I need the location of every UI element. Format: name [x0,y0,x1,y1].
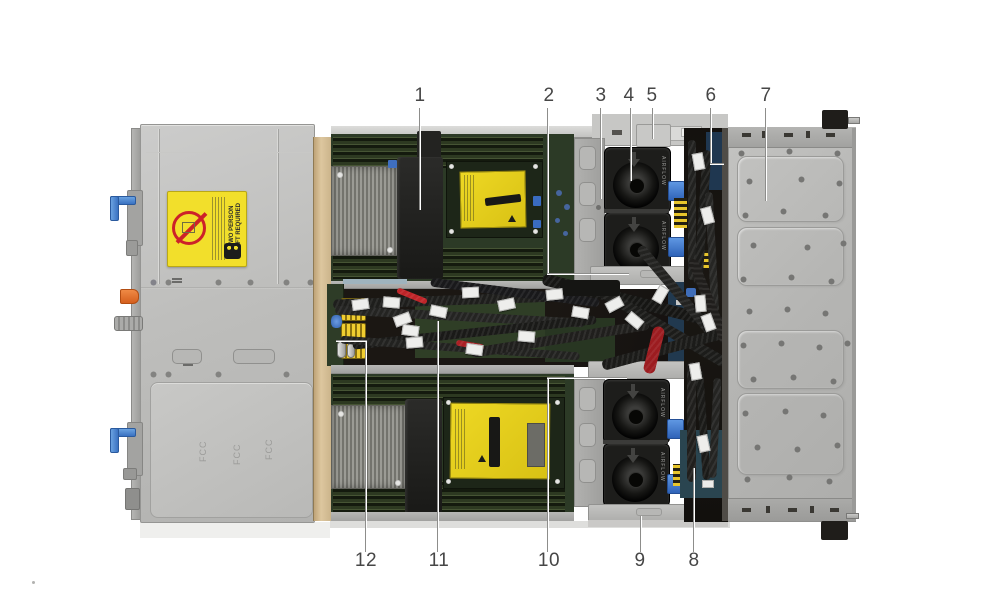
bay-bottom-rail [331,365,574,374]
top-heatsink-screw-1 [337,172,343,178]
chassis-corner-top-right [822,110,848,129]
bottom-socket-screw-br [555,479,560,484]
callout-label-3: 3 [595,85,606,107]
figure-canvas: TWO PERSON LIFT REQUIRED FCC FCC FCC [0,0,999,595]
bottom-heatsink-screw-2 [395,480,401,486]
cage-bottom-wall-tab-2 [579,423,596,447]
stamped-tab-b [233,349,275,364]
hook-bottom-2 [125,488,140,510]
callout-line-9 [640,516,642,552]
fan-2-airflow-text: AIRFLOW [660,221,666,267]
cage-top-wall-tab-1 [579,146,596,170]
fan-2-arrow-head [628,224,640,232]
chassis-corner-bottom-right [821,521,848,540]
callout-line-6 [710,108,712,165]
top-cap-4 [563,231,568,236]
bay-connector-block [560,280,620,296]
chassis-shadow [140,522,330,538]
callout-line-11 [437,321,439,552]
callout-label-12: 12 [355,550,377,572]
fan-1-airflow-text: AIRFLOW [660,156,666,202]
cable-label [545,288,563,301]
cable-label [351,298,369,311]
no-lift-box-sketch [182,222,195,233]
top-socket-screw-tr [533,164,538,169]
callout-line-12-h [336,340,367,342]
callout-label-2: 2 [543,85,554,107]
cable-label [462,287,480,299]
vent-mark [172,278,182,283]
chassis-pin-bottom-right [846,513,859,519]
plate-bottom-slot-5 [830,508,839,512]
top-heatsink-screw-2 [387,247,393,253]
top-socket-screw-br [533,229,538,234]
top-cap-1 [556,190,562,196]
bottom-socket-cover-textblock [455,409,467,469]
bottom-node-bottom-rail [331,512,574,521]
cage-top-wall-tab-2 [579,182,596,206]
fan-3-airflow-text: AIRFLOW [659,388,665,434]
callout-line-3 [600,108,602,199]
cable-label [518,330,536,342]
top-shroud-clip [388,160,397,168]
cover-seam-h [146,152,313,153]
cage-bottom-wall-tab-1 [579,387,596,411]
callout-line-7 [765,108,767,201]
fan-4-airflow-text: AIRFLOW [659,452,665,498]
fan-3-arrow [631,384,635,391]
bottom-socket-lever-bar [489,417,500,467]
fan-2-connector [668,237,685,257]
callout-line-4 [630,108,632,181]
warning-triangle-icon-bottom [478,455,486,462]
callout-line-6-h [710,163,724,165]
callout-label-4: 4 [623,85,634,107]
top-socket-cover-textblock [464,175,476,221]
plate-right-edge [852,128,856,521]
callout-line-12 [365,341,367,552]
cage-top-wall-tab-3 [579,218,596,242]
orange-pull-tab [120,289,139,304]
plate-stamp-2 [737,227,844,286]
bottom-node-board-right [565,374,574,521]
plate-bottom-slot-2 [766,506,770,513]
callout-label-5: 5 [646,85,657,107]
plate-top-slot-4 [806,131,810,138]
callout-line-10 [547,378,549,552]
callout-label-1: 1 [414,85,425,107]
bottom-node-heatsink [331,405,406,489]
bottom-heatsink-screw-1 [338,411,344,417]
callout-label-11: 11 [429,550,450,572]
cable-label [406,336,424,348]
top-socket-blue-clip-2 [533,220,541,228]
embossed-fcc-2: FCC [232,444,242,466]
plate-top-band [728,127,856,148]
cable-label [694,295,706,313]
cable-label [465,343,483,356]
lift-pictogram-icon [224,243,241,259]
plate-stamp-1 [737,156,844,222]
fan-4-arrow [631,448,635,455]
release-latch-top-stem [110,196,119,221]
bottom-socket-lever-block [527,423,545,467]
cage-top-wall-screw [596,205,601,210]
top-cap-3 [555,218,560,223]
stamped-tab-a [172,349,202,364]
callout-line-5 [652,108,654,139]
plate-top-slot-3 [784,133,793,137]
fan-cage-top-midbar [604,209,669,213]
callout-line-2 [547,108,549,275]
callout-line-8 [693,468,695,552]
cable-label [383,296,401,308]
warning-triangle-icon-top [508,215,516,222]
fan-2-arrow [632,217,636,224]
fan-cage-bottom-midbar [603,440,668,444]
plate-stamp-3 [737,330,844,389]
release-latch-bottom-stem [110,428,119,453]
top-socket-screw-bl [449,229,454,234]
plate-top-slot-1 [742,133,751,137]
bottom-socket-screw-bl [446,479,451,484]
fan-3-hub [628,409,644,425]
callout-label-8: 8 [688,550,699,572]
embossed-fcc-1: FCC [198,441,208,463]
plate-bottom-slot-4 [810,506,814,513]
plate-bottom-slot-3 [788,508,797,512]
cable-label [401,324,419,337]
top-socket-screw-tl [449,164,454,169]
stray-dot [32,581,35,584]
ribbed-pull-tab [114,316,143,331]
callout-line-2-h [547,273,629,275]
hook-mid [126,240,138,256]
plate-bottom-slot-1 [742,508,751,512]
callout-label-6: 6 [705,85,716,107]
plate-top-slot-5 [826,133,835,137]
bottom-socket-screw-tr [555,400,560,405]
fan-1-arrow [632,152,636,159]
chassis-pin-top-right [848,117,860,124]
blue-capacitor [331,315,342,328]
cage-bracket-slot-bottom [636,508,662,516]
top-node-heatsink [331,166,398,256]
cage-bottom-wall-tab-3 [579,459,596,483]
fan-4-hub [628,472,644,488]
fan-4-arrow-head [627,455,639,463]
top-slot-1 [612,130,622,135]
callout-label-10: 10 [538,550,560,572]
bay-blue-strip [343,279,407,284]
cover-seam-h2 [141,287,314,289]
yellow-wires-1 [674,198,687,228]
top-cap-2 [564,204,570,210]
callout-label-9: 9 [634,550,645,572]
top-socket-blue-clip-1 [533,196,541,206]
callout-line-1 [419,108,421,210]
fan-3-arrow-head [627,391,639,399]
hook-bottom-1 [123,468,137,480]
callout-line-10-h [547,377,627,379]
embossed-fcc-3: FCC [264,439,274,461]
plate-stamp-4 [737,393,844,475]
plate-screws [0,0,3,3]
callout-label-7: 7 [760,85,771,107]
pdb-bottom-chip [702,480,714,488]
